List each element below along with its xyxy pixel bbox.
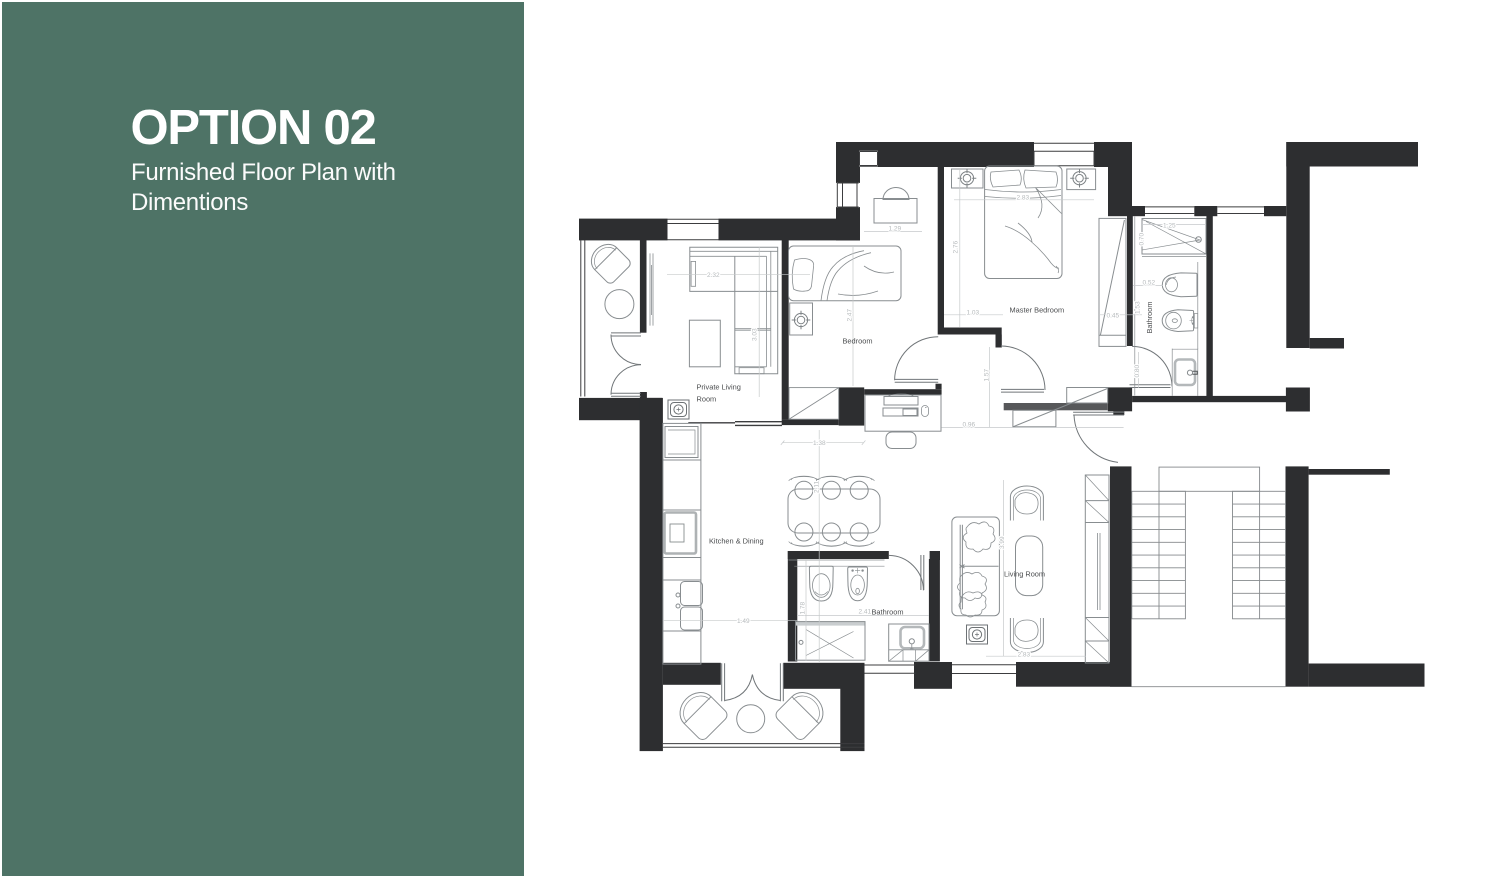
svg-text:0.52: 0.52 bbox=[1143, 280, 1156, 287]
svg-text:2.83: 2.83 bbox=[1018, 652, 1031, 659]
svg-text:1.53: 1.53 bbox=[1135, 301, 1142, 314]
svg-text:Bathroom: Bathroom bbox=[1145, 301, 1154, 333]
svg-text:2.76: 2.76 bbox=[953, 240, 960, 253]
svg-text:Bathroom: Bathroom bbox=[872, 608, 904, 617]
svg-text:1.29: 1.29 bbox=[889, 226, 902, 233]
svg-text:2.83: 2.83 bbox=[1017, 195, 1030, 202]
svg-text:0.80: 0.80 bbox=[1134, 364, 1141, 377]
svg-text:1.03: 1.03 bbox=[967, 310, 980, 317]
svg-text:Room: Room bbox=[697, 395, 717, 404]
svg-text:1.25: 1.25 bbox=[1163, 223, 1176, 230]
svg-text:0.70: 0.70 bbox=[1139, 232, 1146, 245]
svg-text:3.03: 3.03 bbox=[752, 328, 759, 341]
svg-text:Kitchen & Dining: Kitchen & Dining bbox=[709, 537, 764, 546]
svg-text:0.45: 0.45 bbox=[1107, 313, 1120, 320]
svg-text:2.41: 2.41 bbox=[859, 609, 872, 616]
svg-text:2.32: 2.32 bbox=[707, 272, 720, 279]
svg-text:Bedroom: Bedroom bbox=[843, 337, 873, 346]
svg-text:1.57: 1.57 bbox=[984, 368, 991, 381]
svg-text:Living Room: Living Room bbox=[1004, 570, 1045, 579]
svg-text:2.47: 2.47 bbox=[847, 308, 854, 321]
svg-text:0.96: 0.96 bbox=[963, 422, 976, 429]
svg-text:2.11: 2.11 bbox=[814, 480, 821, 493]
svg-text:Private Living: Private Living bbox=[697, 383, 741, 392]
svg-text:1.49: 1.49 bbox=[737, 618, 750, 625]
svg-text:1.38: 1.38 bbox=[813, 440, 826, 447]
svg-text:3.99: 3.99 bbox=[999, 536, 1006, 549]
svg-text:Master Bedroom: Master Bedroom bbox=[1010, 306, 1065, 315]
svg-text:1.78: 1.78 bbox=[800, 601, 807, 614]
